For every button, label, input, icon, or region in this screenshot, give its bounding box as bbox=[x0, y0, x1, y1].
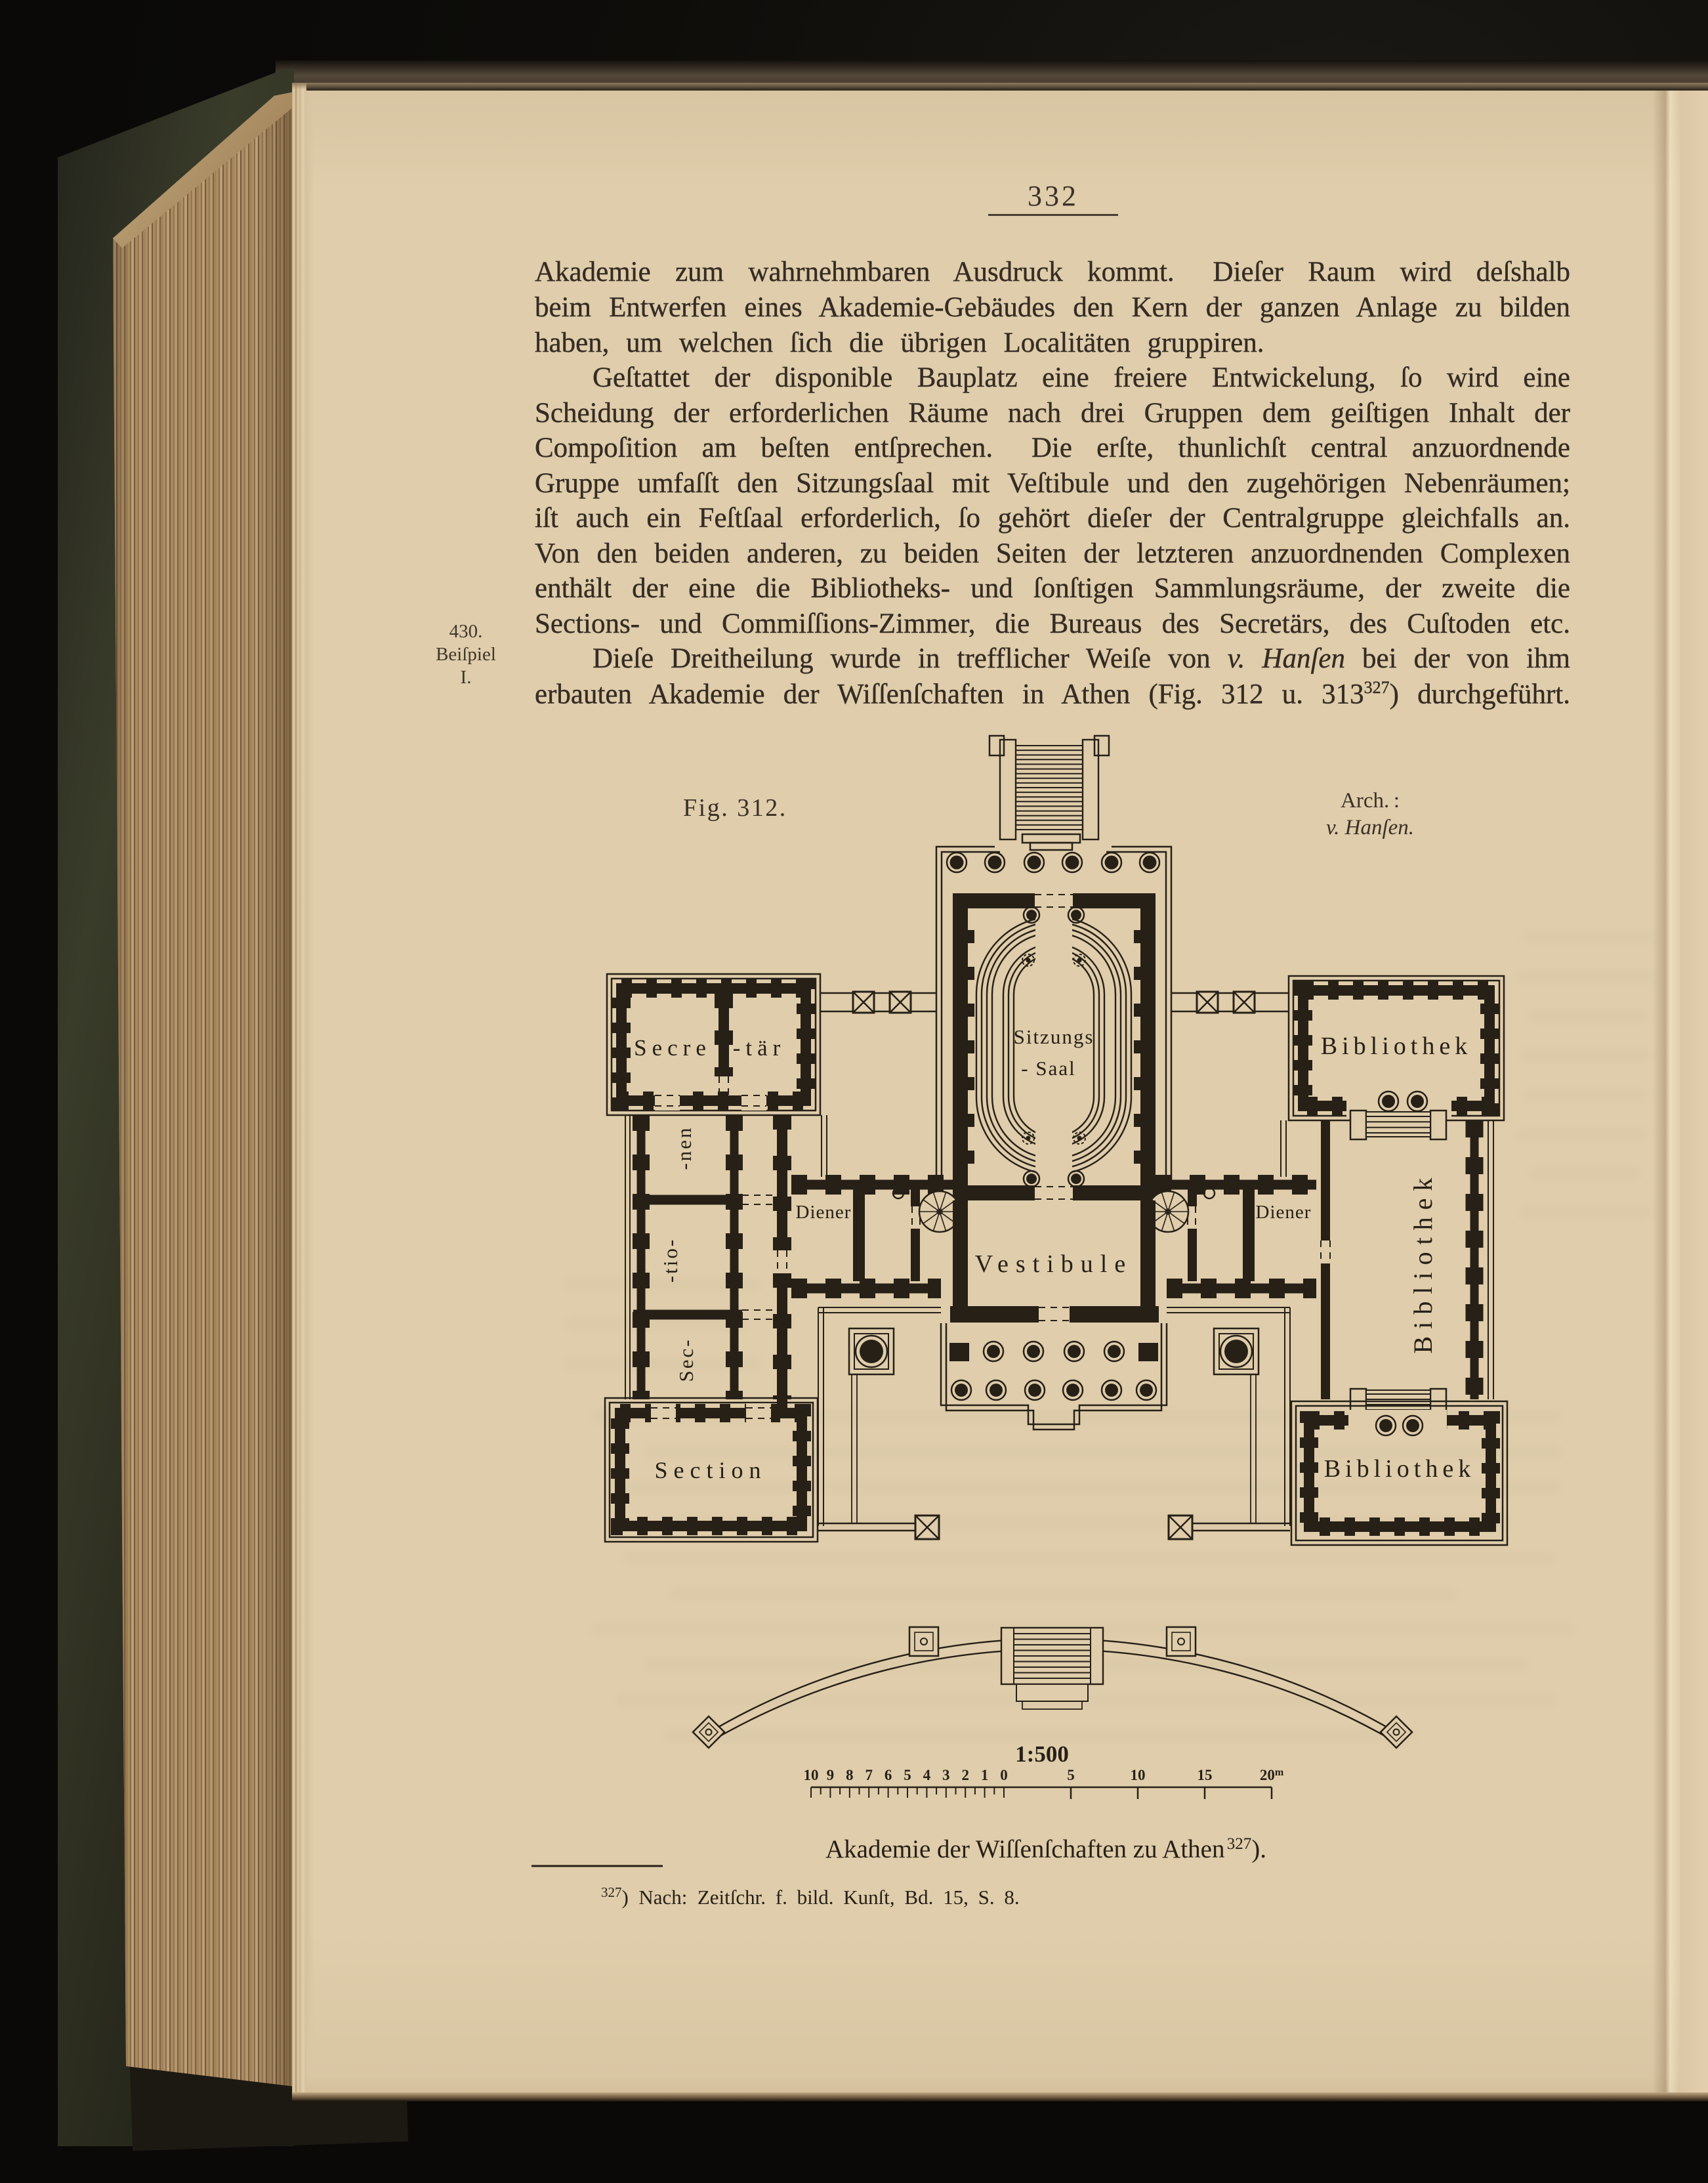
svg-text:5: 5 bbox=[904, 1767, 911, 1783]
svg-text:-tio-: -tio- bbox=[659, 1238, 682, 1282]
svg-text:7: 7 bbox=[865, 1767, 873, 1783]
svg-text:0: 0 bbox=[1000, 1767, 1008, 1783]
svg-text:3: 3 bbox=[942, 1767, 950, 1783]
svg-text:Vestibule: Vestibule bbox=[975, 1250, 1133, 1278]
svg-text:Sec-: Sec- bbox=[675, 1338, 698, 1382]
svg-text:10: 10 bbox=[804, 1767, 819, 1783]
svg-text:Bibliothek: Bibliothek bbox=[1408, 1171, 1438, 1354]
svg-text:Sitzungs: Sitzungs bbox=[1014, 1025, 1094, 1048]
svg-text:9: 9 bbox=[827, 1767, 835, 1783]
svg-text:6: 6 bbox=[885, 1767, 892, 1783]
svg-text:- Saal: - Saal bbox=[1021, 1057, 1075, 1080]
svg-text:-nen: -nen bbox=[673, 1126, 696, 1170]
svg-text:1:500: 1:500 bbox=[1015, 1741, 1069, 1767]
svg-text:327) Nach: Zeitſchr. f. bild.: 327) Nach: Zeitſchr. f. bild. Kunſt, Bd.… bbox=[601, 1884, 1020, 1909]
svg-text:Secre: Secre bbox=[634, 1035, 711, 1061]
svg-text:5: 5 bbox=[1067, 1767, 1075, 1783]
svg-text:2: 2 bbox=[961, 1767, 969, 1783]
svg-text:20m: 20m bbox=[1260, 1767, 1284, 1783]
svg-text:Diener: Diener bbox=[1256, 1202, 1312, 1223]
svg-text:Akademie der Wiſſenſchaften zu: Akademie der Wiſſenſchaften zu Athen 327… bbox=[825, 1835, 1266, 1863]
svg-text:Bibliothek: Bibliothek bbox=[1324, 1455, 1475, 1483]
svg-text:8: 8 bbox=[846, 1767, 854, 1783]
svg-text:Section: Section bbox=[655, 1457, 767, 1483]
svg-text:1: 1 bbox=[981, 1767, 989, 1783]
svg-text:4: 4 bbox=[923, 1767, 931, 1783]
svg-text:Bibliothek: Bibliothek bbox=[1321, 1032, 1472, 1060]
svg-text:15: 15 bbox=[1198, 1767, 1213, 1783]
svg-text:10: 10 bbox=[1131, 1767, 1146, 1783]
svg-text:-tär: -tär bbox=[733, 1035, 786, 1061]
svg-text:Diener: Diener bbox=[796, 1202, 852, 1223]
